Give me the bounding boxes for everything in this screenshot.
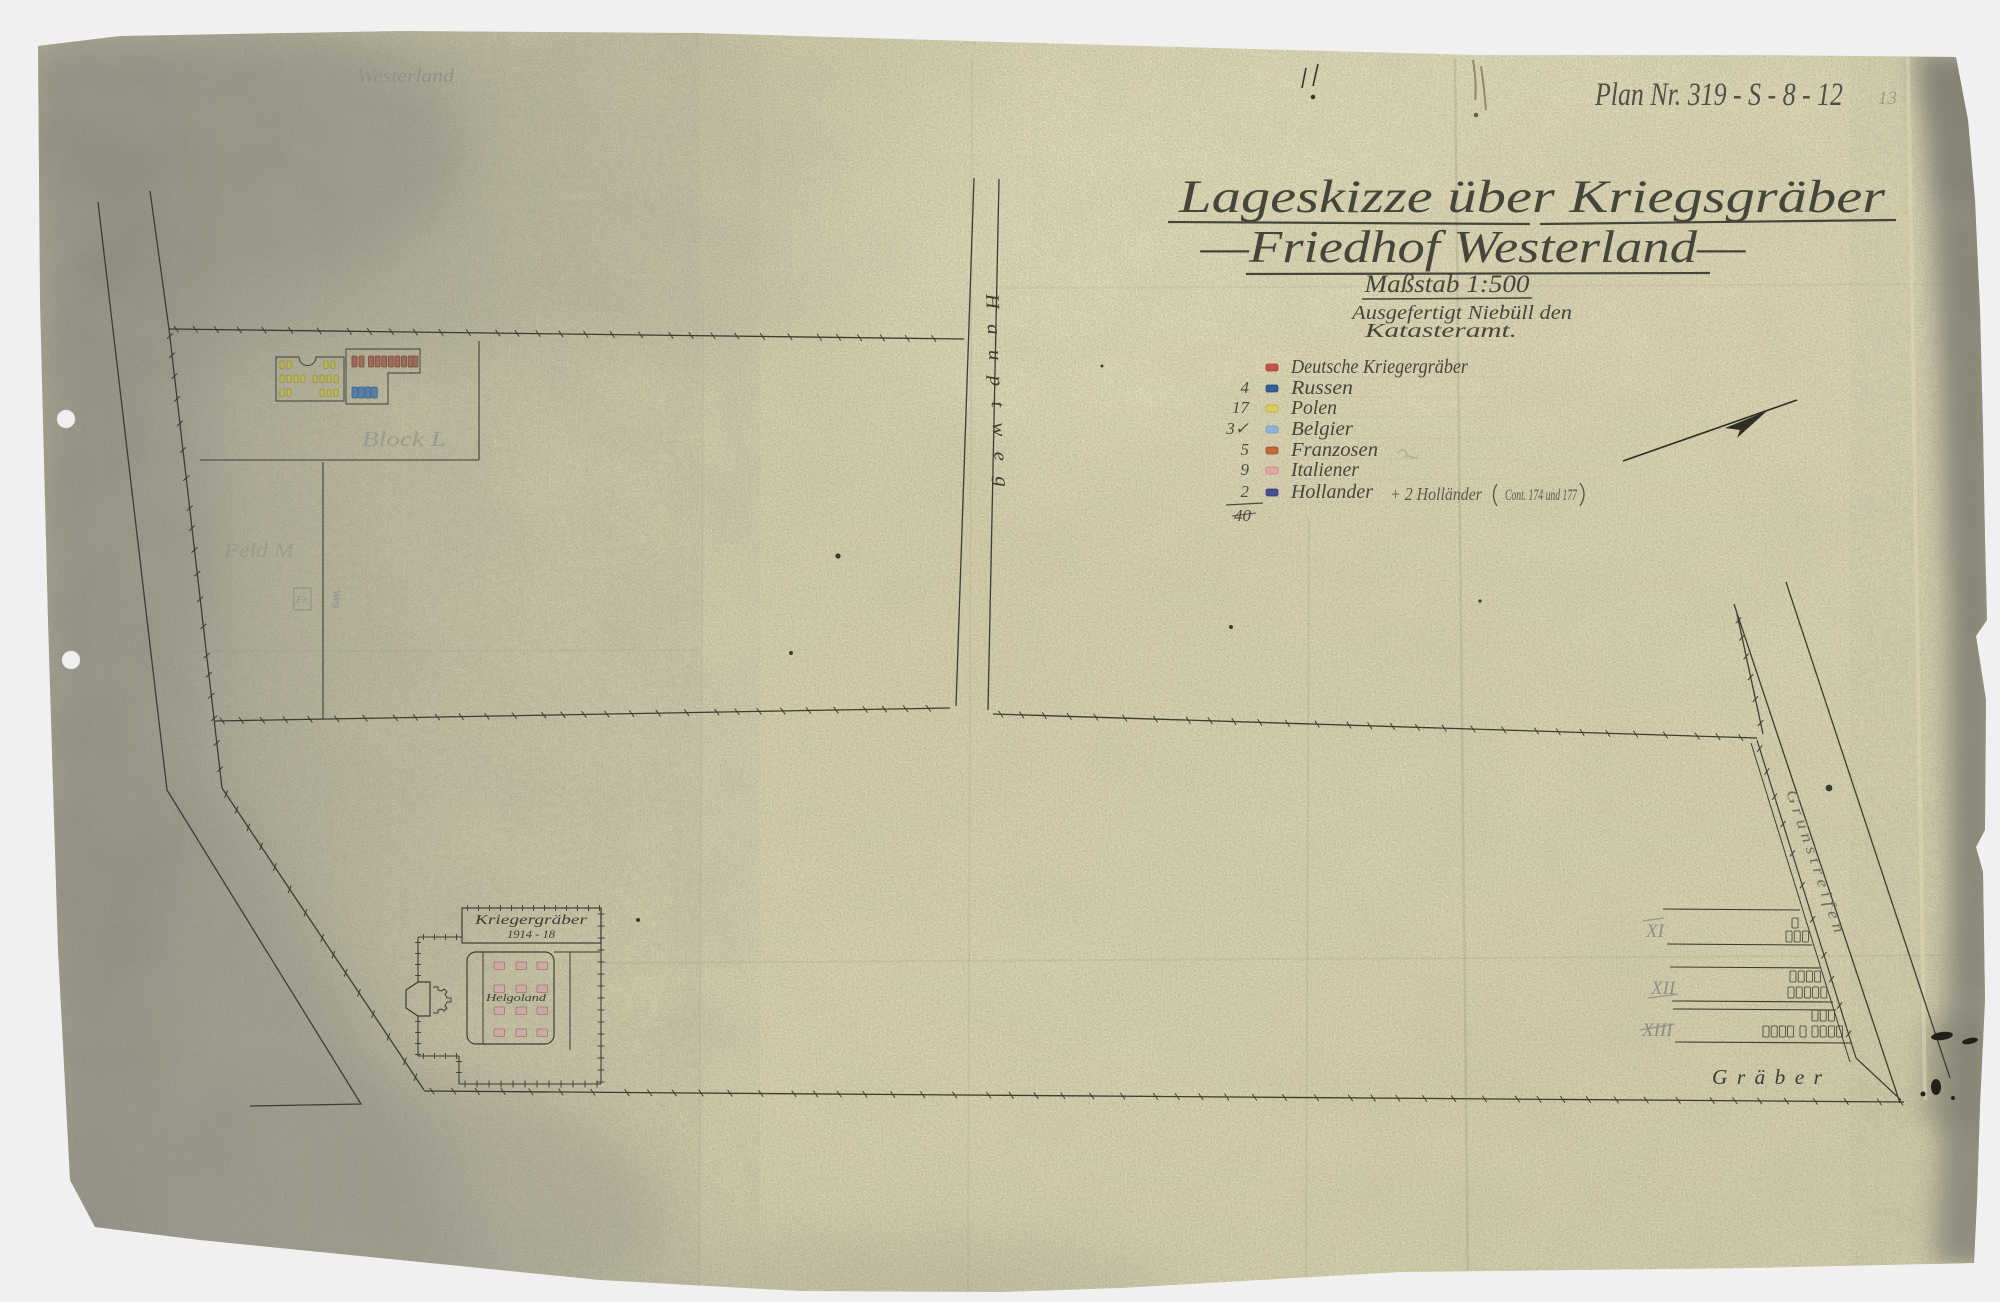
svg-text:Cont. 174 und 177: Cont. 174 und 177 [1505, 487, 1578, 504]
svg-text:Fr.: Fr. [295, 594, 309, 606]
svg-text:Maßstab 1:500: Maßstab 1:500 [1363, 271, 1530, 298]
svg-text:—Friedhof Westerland—: —Friedhof Westerland— [1199, 222, 1746, 272]
svg-text:Feld M: Feld M [223, 540, 296, 562]
svg-text:Italiener: Italiener [1290, 459, 1359, 481]
svg-text:Katasteramt.: Katasteramt. [1364, 320, 1517, 342]
svg-text:Helgoland: Helgoland [485, 993, 548, 1004]
svg-text:Block L: Block L [362, 427, 446, 451]
svg-text:3✓: 3✓ [1225, 419, 1249, 438]
svg-text:Franzosen: Franzosen [1290, 439, 1378, 461]
svg-text:Plan Nr. 319 - S - 8 - 12: Plan Nr. 319 - S - 8 - 12 [1594, 77, 1843, 113]
svg-text:XIII: XIII [1641, 1020, 1674, 1041]
svg-text:G r ä b e r: G r ä b e r [1712, 1065, 1824, 1089]
svg-text:1914 - 18: 1914 - 18 [507, 929, 555, 941]
svg-text:2: 2 [1241, 482, 1250, 501]
svg-text:Hollander: Hollander [1290, 481, 1373, 503]
svg-text:XI: XI [1645, 921, 1666, 942]
svg-text:13: 13 [1878, 88, 1897, 109]
svg-text:+ 2 Holländer: + 2 Holländer [1390, 484, 1483, 504]
svg-text:9: 9 [1241, 460, 1250, 479]
svg-text:17: 17 [1232, 398, 1251, 417]
svg-text:Polen: Polen [1290, 397, 1337, 419]
svg-text:Russen: Russen [1290, 377, 1353, 399]
svg-text:Deutsche Kriegergräber: Deutsche Kriegergräber [1290, 356, 1468, 378]
svg-text:Belgier: Belgier [1291, 418, 1353, 440]
svg-text:Lageskizze über Kriegsgräber: Lageskizze über Kriegsgräber [1178, 171, 1886, 223]
svg-text:5: 5 [1241, 440, 1250, 459]
svg-text:Kriegergräber: Kriegergräber [474, 912, 588, 927]
svg-text:Weg: Weg [330, 590, 343, 610]
svg-text:4: 4 [1241, 378, 1250, 397]
svg-text:Westerland: Westerland [357, 66, 455, 87]
